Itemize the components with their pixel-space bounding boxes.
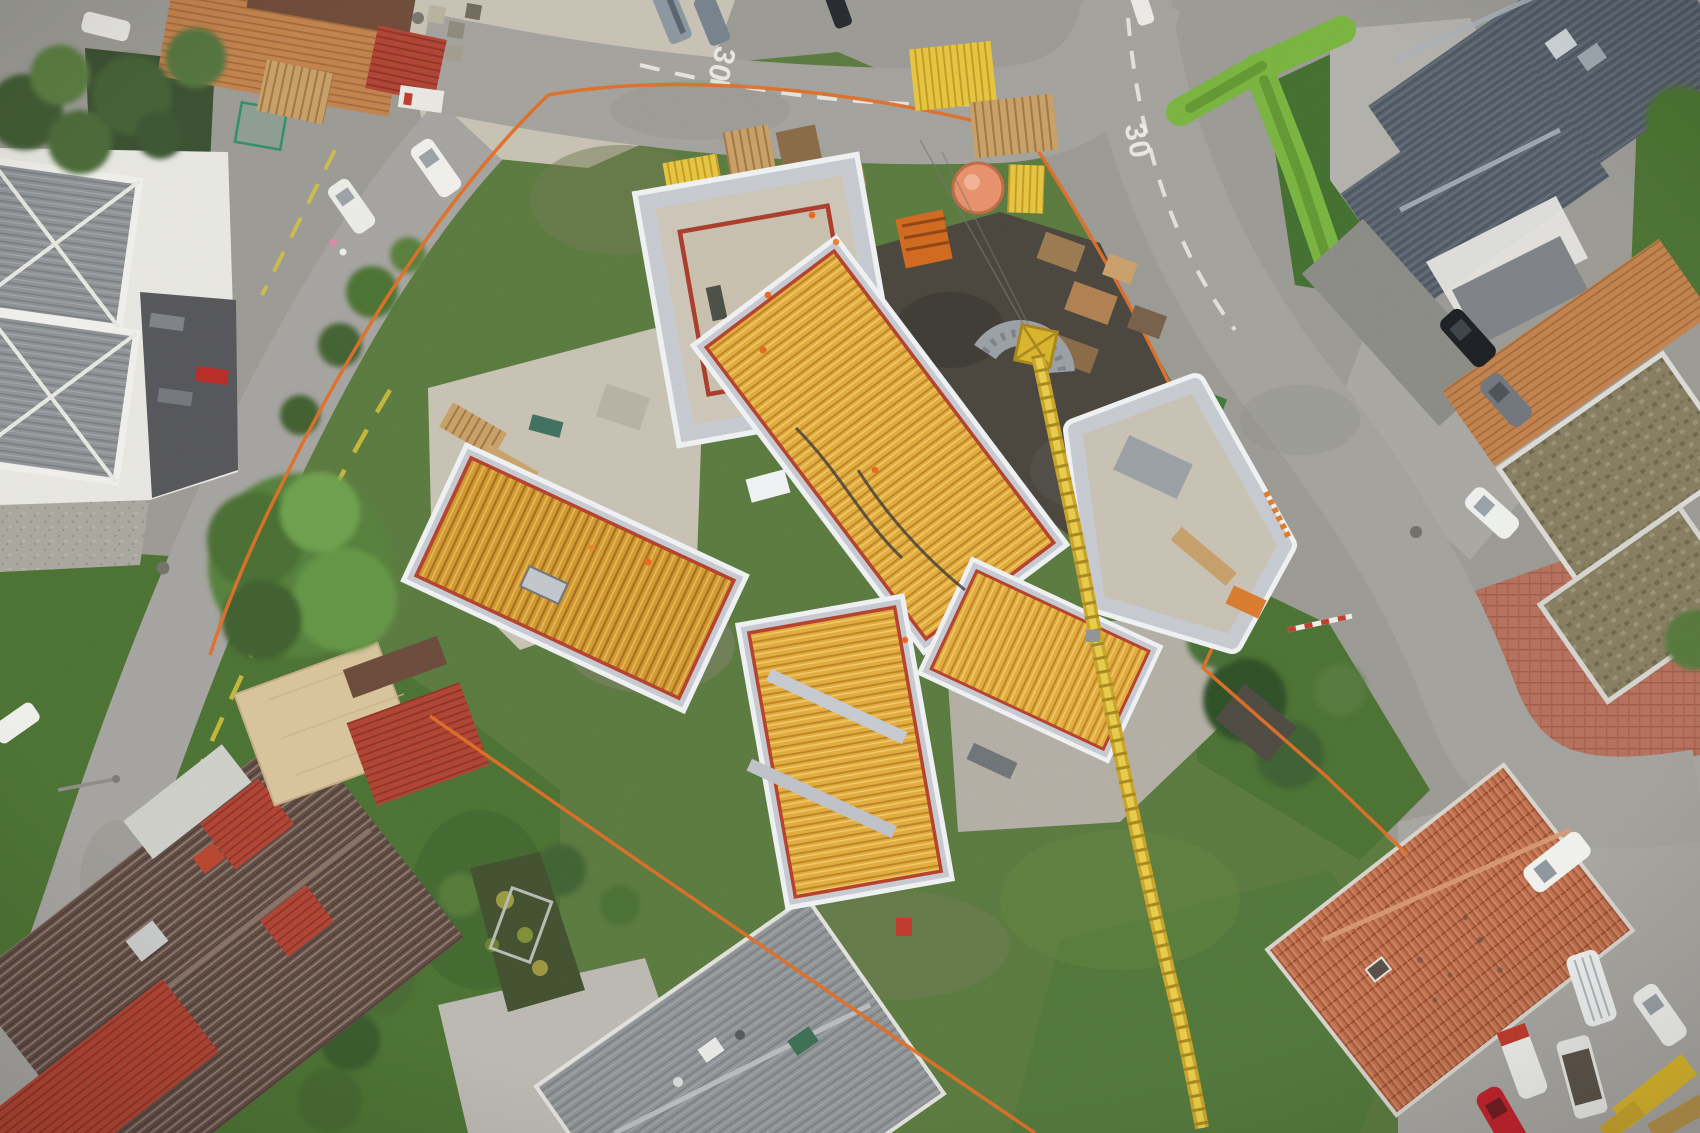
scene-canvas: 30 30 — [0, 0, 1700, 1133]
aerial-photo-construction-site: 30 30 — [0, 0, 1700, 1133]
vignette — [0, 0, 1700, 1133]
